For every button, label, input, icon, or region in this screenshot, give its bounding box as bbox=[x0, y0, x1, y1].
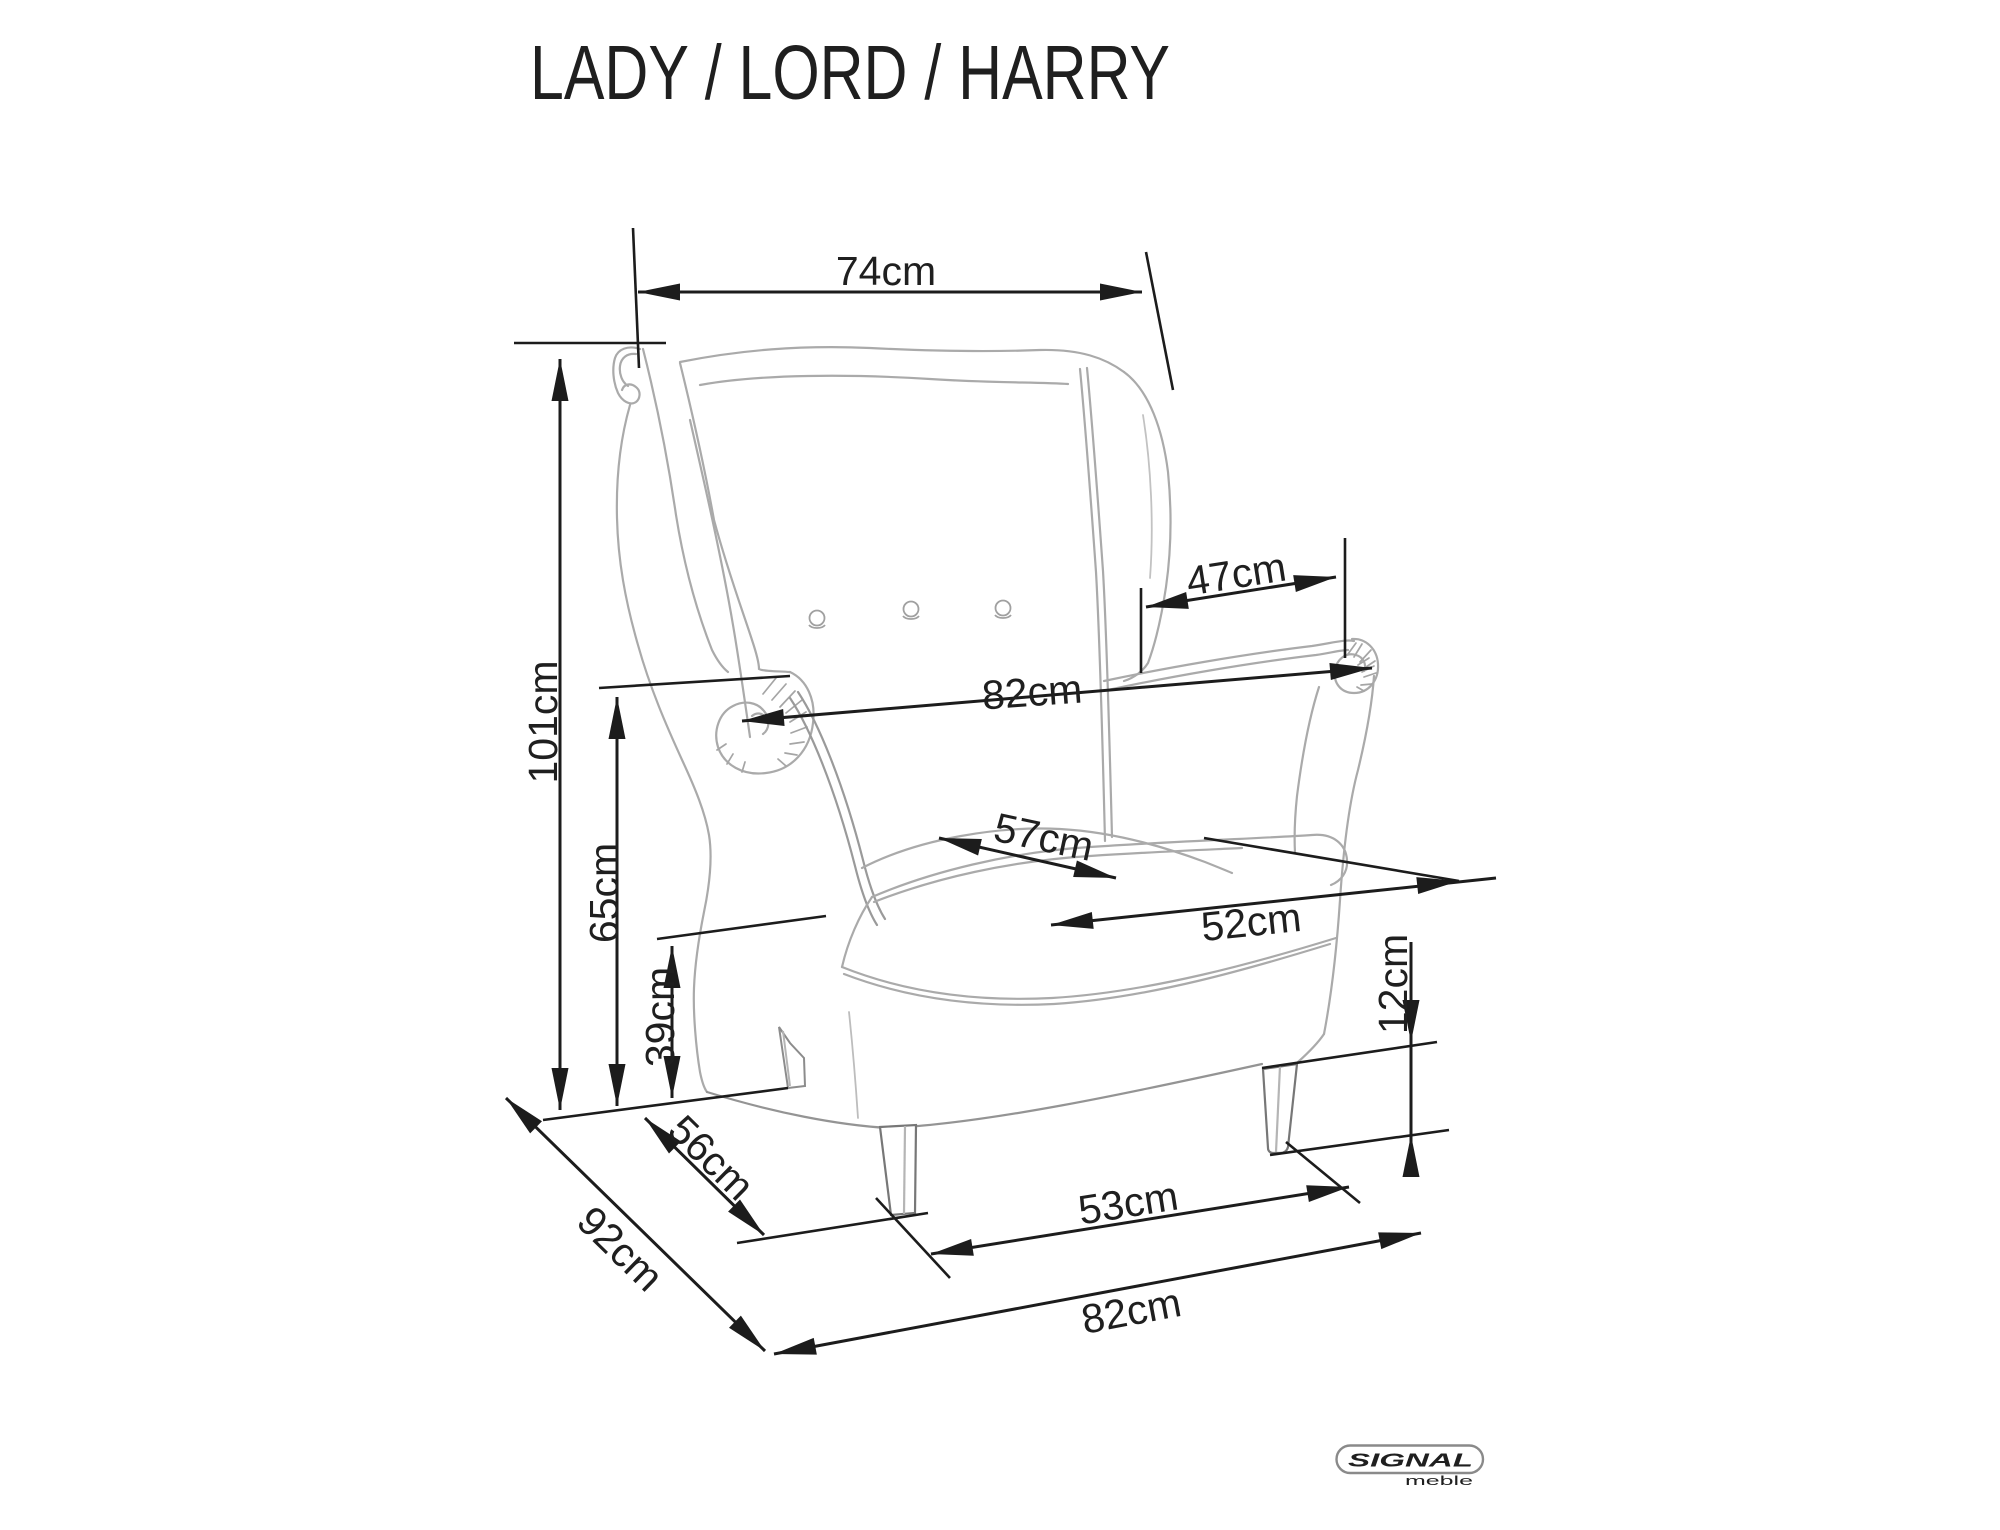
svg-text:39cm: 39cm bbox=[637, 967, 683, 1067]
svg-text:74cm: 74cm bbox=[836, 248, 936, 294]
svg-text:82cm: 82cm bbox=[980, 666, 1083, 719]
svg-text:101cm: 101cm bbox=[520, 660, 566, 783]
svg-text:SIGNAL: SIGNAL bbox=[1348, 1451, 1473, 1471]
svg-text:65cm: 65cm bbox=[581, 843, 627, 943]
svg-text:meble: meble bbox=[1405, 1473, 1473, 1488]
svg-text:12cm: 12cm bbox=[1370, 934, 1416, 1034]
svg-text:LADY / LORD / HARRY: LADY / LORD / HARRY bbox=[530, 30, 1170, 116]
